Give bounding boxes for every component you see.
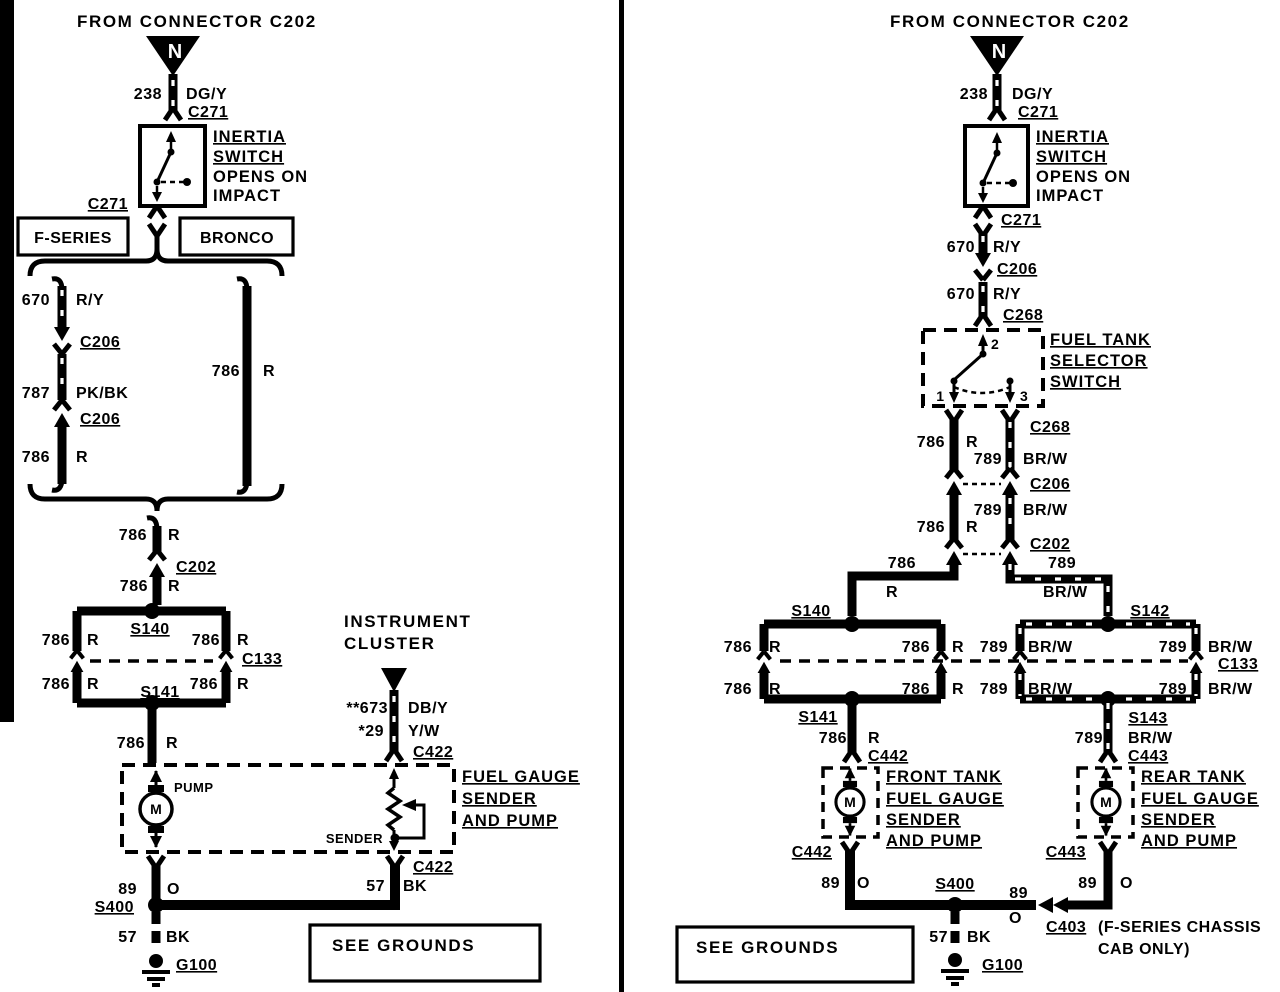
right-wire-789b-color: BR/W bbox=[1023, 502, 1068, 519]
left-fgsp-label-1: FUEL GAUGE bbox=[462, 768, 580, 786]
right-connector-c268-bottom: C268 bbox=[1030, 419, 1070, 436]
right-rear-loop-ll-color: BR/W bbox=[1028, 681, 1073, 698]
right-front-loop-lr-color: R bbox=[952, 681, 964, 698]
selector-label-1: FUEL TANK bbox=[1050, 331, 1151, 349]
right-see-grounds-label: SEE GROUNDS bbox=[696, 938, 839, 957]
left-wire-786e-color: R bbox=[166, 735, 178, 752]
right-wire-57-color: BK bbox=[967, 929, 991, 946]
right-wire-786c-number: 786 bbox=[888, 555, 916, 572]
right-front-loop-ul-number: 786 bbox=[724, 639, 752, 656]
right-wire-789d-color: BR/W bbox=[1128, 730, 1173, 747]
left-splice-s400: S400 bbox=[95, 899, 134, 916]
left-wire-786b-number: 786 bbox=[212, 363, 240, 380]
left-inertia-label-1: INERTIA bbox=[213, 128, 286, 146]
right-inertia-label-4: IMPACT bbox=[1036, 187, 1104, 205]
right-wire-57-number: 57 bbox=[929, 929, 948, 946]
c403-note-line-2: CAB ONLY) bbox=[1098, 941, 1190, 958]
left-wire-786a-number: 786 bbox=[22, 449, 50, 466]
left-wire-787-color: PK/BK bbox=[76, 385, 128, 402]
left-wire-786e-number: 786 bbox=[117, 735, 145, 752]
selector-terminal-3: 3 bbox=[1020, 388, 1028, 404]
wiring-diagram-page: FROM CONNECTOR C202 N 238 DG/Y C271 INER… bbox=[0, 0, 1280, 992]
left-inertia-label-2: SWITCH bbox=[213, 148, 284, 166]
left-wire-786b-color: R bbox=[263, 363, 275, 380]
right-rear-loop-ur-number: 789 bbox=[1159, 639, 1187, 656]
right-wire-789d-number: 789 bbox=[1075, 730, 1103, 747]
left-wire-787-number: 787 bbox=[22, 385, 50, 402]
rear-tank-motor-letter: M bbox=[1100, 794, 1112, 810]
rear-tank-label-1: REAR TANK bbox=[1141, 768, 1246, 786]
right-wire-238-number: 238 bbox=[960, 86, 988, 103]
right-wire-786b-number: 786 bbox=[917, 519, 945, 536]
left-wire-57b-color: BK bbox=[166, 929, 190, 946]
left-wire-238-number: 238 bbox=[134, 86, 162, 103]
right-rear-loop-lr-color: BR/W bbox=[1208, 681, 1253, 698]
right-splice-s141: S141 bbox=[798, 709, 837, 726]
right-rear-loop-ur-color: BR/W bbox=[1208, 639, 1253, 656]
front-tank-label-4: AND PUMP bbox=[886, 832, 982, 850]
left-wire-29-number: *29 bbox=[358, 723, 384, 740]
left-loop-ul-color: R bbox=[87, 632, 99, 649]
left-wire-238-color: DG/Y bbox=[186, 86, 227, 103]
left-inertia-label-3: OPENS ON bbox=[213, 168, 308, 186]
c403-note-line-1: (F-SERIES CHASSIS bbox=[1098, 919, 1261, 936]
right-wire-789a-number: 789 bbox=[974, 451, 1002, 468]
right-front-loop-ll-number: 786 bbox=[724, 681, 752, 698]
right-connector-c442-bottom: C442 bbox=[792, 844, 832, 861]
left-wire-89-number: 89 bbox=[118, 881, 137, 898]
right-wire-789b-number: 789 bbox=[974, 502, 1002, 519]
left-loop-ur-color: R bbox=[237, 632, 249, 649]
right-wire-670b-number: 670 bbox=[947, 286, 975, 303]
right-wire-786c-color: R bbox=[886, 584, 898, 601]
left-inertia-label-4: IMPACT bbox=[213, 187, 281, 205]
right-wire-89c-number: 89 bbox=[1078, 875, 1097, 892]
right-front-loop-ul-color: R bbox=[769, 639, 781, 656]
right-inertia-label-2: SWITCH bbox=[1036, 148, 1107, 166]
right-wire-786a-color: R bbox=[966, 434, 978, 451]
left-ground-g100: G100 bbox=[176, 957, 217, 974]
right-rear-loop-ll-number: 789 bbox=[980, 681, 1008, 698]
front-tank-motor-letter: M bbox=[844, 794, 856, 810]
right-wire-89a-number: 89 bbox=[821, 875, 840, 892]
right-connector-c403: C403 bbox=[1046, 919, 1086, 936]
right-wire-789c-number: 789 bbox=[1048, 555, 1076, 572]
left-loop-ll-number: 786 bbox=[42, 676, 70, 693]
right-wire-786a-number: 786 bbox=[917, 434, 945, 451]
left-loop-lr-number: 786 bbox=[190, 676, 218, 693]
left-wire-57a-color: BK bbox=[403, 878, 427, 895]
left-wire-29-color: Y/W bbox=[408, 723, 440, 740]
rear-tank-label-3: SENDER bbox=[1141, 811, 1216, 829]
right-connector-c206-mid: C206 bbox=[1030, 476, 1070, 493]
left-splice-s141: S141 bbox=[140, 684, 179, 701]
left-splice-s140: S140 bbox=[130, 621, 169, 638]
left-pump-label: PUMP bbox=[174, 780, 214, 795]
right-rear-loop-lr-number: 789 bbox=[1159, 681, 1187, 698]
left-connector-c133: C133 bbox=[242, 651, 282, 668]
right-wire-789a-color: BR/W bbox=[1023, 451, 1068, 468]
selector-label-2: SELECTOR bbox=[1050, 352, 1148, 370]
selector-terminal-2: 2 bbox=[991, 336, 999, 352]
left-fgsp-label-2: SENDER bbox=[462, 790, 537, 808]
selector-terminal-1: 1 bbox=[936, 388, 944, 404]
column-divider bbox=[619, 0, 624, 992]
left-connector-c271-bottom: C271 bbox=[88, 196, 128, 213]
right-wire-89a-color: O bbox=[857, 875, 870, 892]
right-inertia-label-1: INERTIA bbox=[1036, 128, 1109, 146]
left-wire-673-color: DB/Y bbox=[408, 700, 448, 717]
right-splice-s140: S140 bbox=[791, 603, 830, 620]
right-connector-c442-top: C442 bbox=[868, 748, 908, 765]
left-connector-c422-bottom: C422 bbox=[413, 859, 453, 876]
right-front-loop-ur-number: 786 bbox=[902, 639, 930, 656]
right-connector-c443-top: C443 bbox=[1128, 748, 1168, 765]
left-wire-670-number: 670 bbox=[22, 292, 50, 309]
right-ground-g100: G100 bbox=[982, 957, 1023, 974]
right-connector-c271-top: C271 bbox=[1018, 104, 1058, 121]
left-loop-lr-color: R bbox=[237, 676, 249, 693]
right-wire-670b-color: R/Y bbox=[993, 286, 1021, 303]
left-wire-786c-number: 786 bbox=[119, 527, 147, 544]
right-rear-loop-ul-color: BR/W bbox=[1028, 639, 1073, 656]
right-wire-670a-color: R/Y bbox=[993, 239, 1021, 256]
right-front-loop-lr-number: 786 bbox=[902, 681, 930, 698]
right-splice-s143: S143 bbox=[1128, 710, 1167, 727]
front-tank-label-2: FUEL GAUGE bbox=[886, 790, 1004, 808]
right-wire-89b-number: 89 bbox=[1009, 885, 1028, 902]
left-wire-89-color: O bbox=[167, 881, 180, 898]
right-wire-89c-color: O bbox=[1120, 875, 1133, 892]
right-front-loop-ur-color: R bbox=[952, 639, 964, 656]
page-edge-bar bbox=[0, 0, 14, 722]
front-tank-label-3: SENDER bbox=[886, 811, 961, 829]
left-connector-c206-upper: C206 bbox=[80, 334, 120, 351]
selector-label-3: SWITCH bbox=[1050, 373, 1121, 391]
right-wire-238-color: DG/Y bbox=[1012, 86, 1053, 103]
right-connector-c133: C133 bbox=[1218, 656, 1258, 673]
left-wire-786a-color: R bbox=[76, 449, 88, 466]
left-wire-673-number: **673 bbox=[346, 700, 388, 717]
left-connector-c271-top: C271 bbox=[188, 104, 228, 121]
left-loop-ur-number: 786 bbox=[192, 632, 220, 649]
left-see-grounds-label: SEE GROUNDS bbox=[332, 936, 475, 955]
right-front-loop-ll-color: R bbox=[769, 681, 781, 698]
left-connector-c202: C202 bbox=[176, 559, 216, 576]
right-wire-786d-color: R bbox=[868, 730, 880, 747]
right-splice-s400: S400 bbox=[935, 876, 974, 893]
right-connector-c271-bottom: C271 bbox=[1001, 212, 1041, 229]
right-source-arrow-letter: N bbox=[992, 41, 1006, 63]
right-connector-c206-top: C206 bbox=[997, 261, 1037, 278]
right-connector-c443-bottom: C443 bbox=[1046, 844, 1086, 861]
left-fgsp-label-3: AND PUMP bbox=[462, 812, 558, 830]
left-header: FROM CONNECTOR C202 bbox=[77, 12, 317, 31]
left-wire-786d-number: 786 bbox=[120, 578, 148, 595]
left-connector-c422-top: C422 bbox=[413, 744, 453, 761]
left-wire-57b-number: 57 bbox=[118, 929, 137, 946]
left-wire-57a-number: 57 bbox=[366, 878, 385, 895]
left-wire-786c-color: R bbox=[168, 527, 180, 544]
rear-tank-label-4: AND PUMP bbox=[1141, 832, 1237, 850]
right-splice-s142: S142 bbox=[1130, 603, 1169, 620]
instrument-cluster-label-1: INSTRUMENT bbox=[344, 612, 471, 631]
left-source-arrow-letter: N bbox=[168, 41, 182, 63]
right-inertia-label-3: OPENS ON bbox=[1036, 168, 1131, 186]
instrument-cluster-label-2: CLUSTER bbox=[344, 634, 435, 653]
wiring-diagram-svg: FROM CONNECTOR C202 N 238 DG/Y C271 INER… bbox=[0, 0, 1280, 992]
bronco-box-label: BRONCO bbox=[200, 230, 274, 247]
right-connector-c268-top: C268 bbox=[1003, 307, 1043, 324]
right-wire-786d-number: 786 bbox=[819, 730, 847, 747]
left-loop-ul-number: 786 bbox=[42, 632, 70, 649]
front-tank-label-1: FRONT TANK bbox=[886, 768, 1002, 786]
f-series-box-label: F-SERIES bbox=[34, 230, 112, 247]
left-wire-670-color: R/Y bbox=[76, 292, 104, 309]
rear-tank-label-2: FUEL GAUGE bbox=[1141, 790, 1259, 808]
right-connector-c202: C202 bbox=[1030, 536, 1070, 553]
left-loop-ll-color: R bbox=[87, 676, 99, 693]
left-pump-motor-letter: M bbox=[150, 801, 162, 817]
left-connector-c206-lower: C206 bbox=[80, 411, 120, 428]
right-wire-89b-color: O bbox=[1009, 910, 1022, 927]
right-wire-789c-color: BR/W bbox=[1043, 584, 1088, 601]
left-wire-786d-color: R bbox=[168, 578, 180, 595]
left-sender-label: SENDER bbox=[326, 831, 383, 846]
right-wire-786b-color: R bbox=[966, 519, 978, 536]
right-wire-670a-number: 670 bbox=[947, 239, 975, 256]
right-rear-loop-ul-number: 789 bbox=[980, 639, 1008, 656]
right-header: FROM CONNECTOR C202 bbox=[890, 12, 1130, 31]
